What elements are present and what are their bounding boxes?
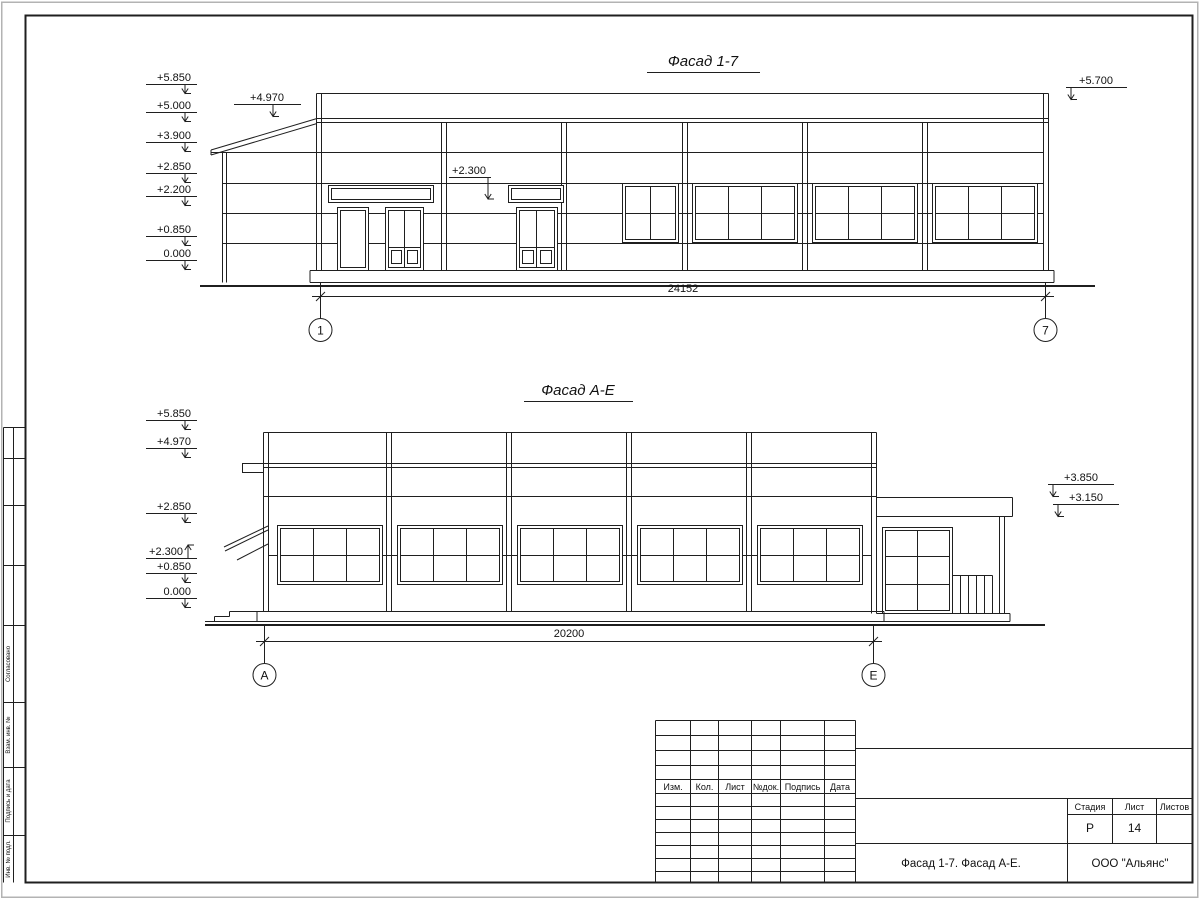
col-ndoc: №док. <box>753 782 779 792</box>
facade-1-7: 1 7 Фасад 1-7 24152 +5.850 +5.000 +3.900… <box>146 53 1127 342</box>
title-block-text: Изм. Кол. Лист №док. Подпись Дата Стадия… <box>663 782 1189 870</box>
elevation-label: +5.850 <box>157 408 191 420</box>
window-3x2 <box>398 526 503 585</box>
double-door <box>386 208 424 271</box>
axis-label: 1 <box>317 324 324 338</box>
drawing-sheet: Согласовано Взам. инв. № Подпись и дата … <box>0 0 1200 900</box>
sheet-label: Лист <box>1125 802 1145 812</box>
side-label: Взам. инв. № <box>5 716 12 753</box>
elevation-label: +4.970 <box>157 436 191 448</box>
elevation-label: 0.000 <box>163 248 191 260</box>
elevation-label: +4.970 <box>250 92 284 104</box>
facade1-title: Фасад 1-7 <box>668 53 739 70</box>
elevation-arrow-icon <box>182 197 191 206</box>
window-3x2 <box>278 526 383 585</box>
elevation-label: +5.000 <box>157 100 191 112</box>
elevation-arrow-icon <box>485 178 494 200</box>
elevation-label: +3.850 <box>1064 472 1098 484</box>
axis-bubbles-A-E: А Е <box>253 664 885 687</box>
elevation-arrow-icon <box>182 261 191 270</box>
dimension-value: 20200 <box>554 628 585 640</box>
side-label: Инв. № подл. <box>5 840 12 878</box>
canopy <box>211 119 317 156</box>
door <box>338 208 369 271</box>
window-3x2 <box>693 184 798 243</box>
door-transom-panel <box>509 186 564 203</box>
elevation-label: +2.300 <box>149 546 183 558</box>
col-kol: Кол. <box>696 782 714 792</box>
elevation-arrow-icon <box>1068 88 1077 100</box>
elevation-label: +5.700 <box>1079 75 1113 87</box>
axis-label: А <box>260 669 268 683</box>
elevation-arrow-icon <box>182 449 191 458</box>
window-3x2 <box>518 526 623 585</box>
elevation-arrow-icon <box>182 421 191 430</box>
window-3x2 <box>758 526 863 585</box>
dimension-value: 24152 <box>668 283 699 295</box>
facade2-title: Фасад А-Е <box>541 382 616 399</box>
facade-1-7-linework <box>200 94 1095 319</box>
window-2x2 <box>623 184 679 243</box>
elevation-arrow-icon <box>1055 505 1064 517</box>
col-data: Дата <box>830 782 850 792</box>
facade-A-E: А Е Фасад А-Е 20200 +5.850 +4.970 +2.850… <box>146 382 1119 687</box>
side-label: Подпись и дата <box>6 779 12 823</box>
console-beam <box>243 464 264 473</box>
elevation-arrow-icon <box>1050 485 1059 497</box>
elevation-label: +0.850 <box>157 224 191 236</box>
elevation-label: 0.000 <box>163 586 191 598</box>
elevation-label: +0.850 <box>157 561 191 573</box>
stage-label: Стадия <box>1075 802 1106 812</box>
elevation-arrow-icon <box>270 105 279 117</box>
sheets-label: Листов <box>1160 802 1189 812</box>
elevation-marks-left: +5.850 +4.970 +2.850 +2.300 +0.850 0.000 <box>146 408 197 608</box>
elevation-arrow-icon <box>182 113 191 122</box>
drawing-name: Фасад 1-7. Фасад А-Е. <box>901 858 1021 870</box>
side-label: Согласовано <box>6 645 12 682</box>
facade-A-E-linework <box>205 433 1045 664</box>
elevation-label: +2.850 <box>157 501 191 513</box>
elevation-marks-left: +5.850 +5.000 +3.900 +2.850 +2.200 +0.85… <box>146 72 197 270</box>
annex <box>877 498 1013 622</box>
col-list: Лист <box>725 782 745 792</box>
double-door <box>517 208 558 271</box>
elevation-arrow-icon <box>182 599 191 608</box>
inner-frame <box>26 16 1193 883</box>
elevation-label: +2.300 <box>452 165 486 177</box>
stage-value: Р <box>1086 821 1094 835</box>
door-transom-panel <box>329 186 434 203</box>
elevation-label: +3.900 <box>157 130 191 142</box>
side-stamp-labels: Согласовано Взам. инв. № Подпись и дата … <box>5 645 12 877</box>
elevation-arrow-icon <box>182 514 191 523</box>
col-izm: Изм. <box>663 782 682 792</box>
elevation-label: +3.150 <box>1069 492 1103 504</box>
entrance-steps <box>205 612 257 622</box>
elevation-label: +2.200 <box>157 184 191 196</box>
elevation-marks-right: +3.850 +3.150 <box>1048 472 1119 517</box>
annex-window-2x3 <box>883 528 953 614</box>
sheet-value: 14 <box>1128 821 1142 835</box>
elevation-arrow-icon <box>182 85 191 94</box>
elevation-arrow-icon <box>182 174 191 183</box>
entrance-canopy <box>224 526 268 560</box>
organization-name: ООО "Альянс" <box>1092 858 1169 870</box>
axis-label: Е <box>869 669 877 683</box>
elevation-arrow-icon <box>182 237 191 246</box>
window-3x2 <box>813 184 918 243</box>
elevation-arrow-icon <box>182 574 191 583</box>
window-3x2 <box>638 526 743 585</box>
elevation-label: +2.850 <box>157 161 191 173</box>
elevation-arrow-up-icon <box>185 545 194 559</box>
col-podpis: Подпись <box>785 782 821 792</box>
annex-railing <box>953 576 993 614</box>
axis-label: 7 <box>1042 324 1049 338</box>
elevation-label: +5.850 <box>157 72 191 84</box>
drawing-canvas: Согласовано Взам. инв. № Подпись и дата … <box>0 0 1200 900</box>
elevation-arrow-icon <box>182 143 191 152</box>
window-3x2 <box>933 184 1038 243</box>
axis-bubbles-1-7: 1 7 <box>309 319 1057 342</box>
